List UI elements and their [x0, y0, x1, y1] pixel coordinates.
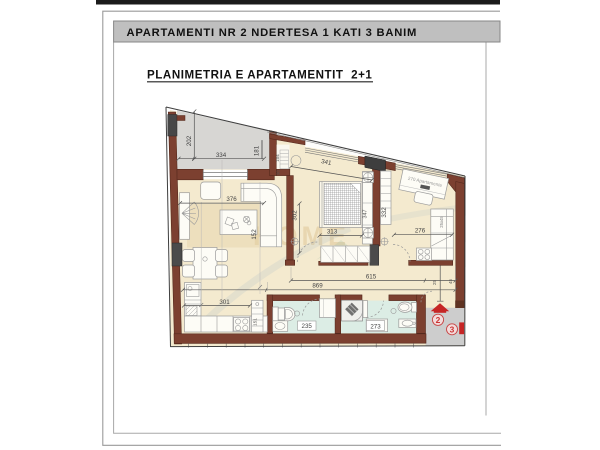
- svg-text:152: 152: [251, 229, 258, 240]
- svg-text:2: 2: [436, 315, 441, 325]
- svg-text:25x45: 25x45: [439, 216, 444, 228]
- svg-text:3: 3: [450, 325, 455, 335]
- svg-text:301: 301: [219, 299, 230, 306]
- svg-text:151: 151: [253, 318, 258, 326]
- svg-text:302: 302: [291, 210, 298, 221]
- svg-text:45: 45: [448, 279, 453, 285]
- svg-text:APARTAMENTI NR 2 NDERTESA 1 KA: APARTAMENTI NR 2 NDERTESA 1 KATI 3 BANIM: [127, 27, 418, 39]
- svg-text:90: 90: [276, 170, 281, 175]
- svg-text:PLANIMETRIA E APARTAMENTIT 2+: PLANIMETRIA E APARTAMENTIT 2+1: [147, 69, 372, 82]
- svg-text:869: 869: [312, 283, 323, 290]
- svg-text:313: 313: [327, 228, 338, 235]
- svg-text:276: 276: [415, 228, 426, 235]
- svg-text:202: 202: [186, 135, 193, 146]
- svg-text:104: 104: [275, 154, 280, 162]
- svg-text:25: 25: [432, 280, 437, 286]
- svg-text:347: 347: [363, 210, 369, 219]
- svg-text:235: 235: [302, 323, 313, 330]
- svg-text:376: 376: [226, 196, 237, 203]
- svg-text:334: 334: [216, 152, 227, 159]
- svg-text:332: 332: [381, 207, 388, 218]
- svg-text:273: 273: [370, 323, 381, 330]
- svg-text:615: 615: [366, 273, 377, 280]
- svg-text:181: 181: [254, 145, 261, 156]
